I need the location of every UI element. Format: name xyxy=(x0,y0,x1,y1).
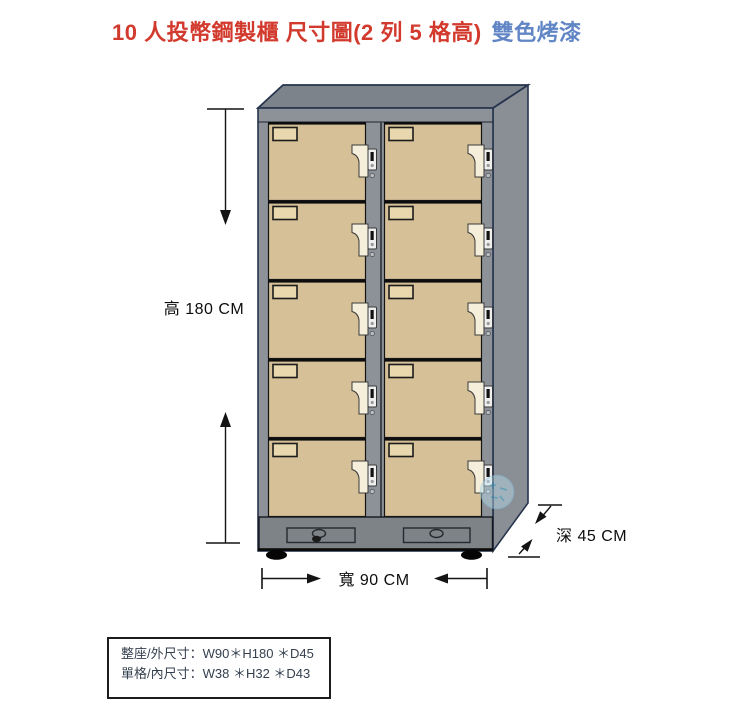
locker-door xyxy=(268,122,377,201)
spec-box: 整座/外尺寸：W90＊H180 ＊D45 單格/內尺寸：W38 ＊H32 ＊D4… xyxy=(107,637,331,699)
locker-door xyxy=(268,201,377,280)
locker-door xyxy=(268,280,377,359)
arrow-right-icon xyxy=(307,574,321,584)
cabinet xyxy=(258,85,528,560)
arrow-down-icon xyxy=(220,210,231,225)
cabinet-base xyxy=(258,517,493,560)
spec-line-inner: 單格/內尺寸：W38 ＊H32 ＊D43 xyxy=(121,664,329,684)
locker-door xyxy=(384,122,493,201)
arrow-up-icon xyxy=(220,412,231,427)
locker-door xyxy=(384,280,493,359)
locker-dimension-diagram: 高 180 CM 寬 90 CM 深 45 CM xyxy=(0,0,740,720)
height-dimension-label: 高 180 CM xyxy=(164,300,244,318)
arrow-left-icon xyxy=(434,574,448,584)
spec-line-outer: 整座/外尺寸：W90＊H180 ＊D45 xyxy=(121,644,329,664)
locker-door xyxy=(268,359,377,438)
height-dimension xyxy=(206,109,244,543)
tray-keyhole-left xyxy=(312,536,321,542)
foot-left xyxy=(266,550,287,560)
locker-door xyxy=(268,438,377,517)
foot-right xyxy=(461,550,482,560)
cabinet-top-face xyxy=(258,85,528,108)
locker-door xyxy=(384,438,493,517)
locker-door xyxy=(384,359,493,438)
base-bottom-edge xyxy=(258,548,493,551)
watermark-stamp xyxy=(481,476,514,509)
center-divider xyxy=(380,122,382,517)
locker-door xyxy=(384,201,493,280)
width-dimension-label: 寬 90 CM xyxy=(338,571,409,589)
depth-dimension-label: 深 45 CM xyxy=(556,527,627,545)
